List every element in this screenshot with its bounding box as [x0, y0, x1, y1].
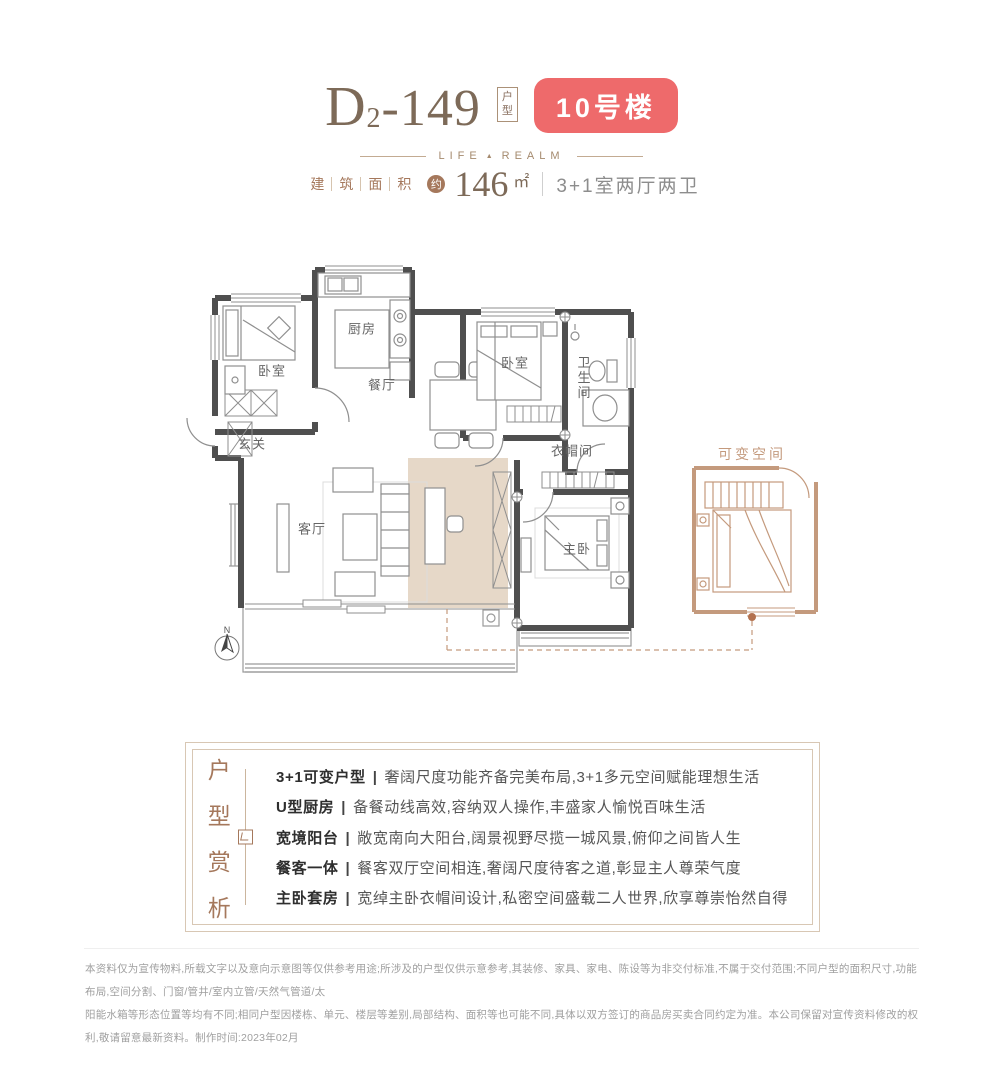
- vertical-title: 户 型 赏 析: [208, 751, 231, 923]
- vtitle-char-4: 析: [208, 889, 231, 923]
- seal-icon: [238, 830, 253, 845]
- vtitle-char-2: 型: [208, 797, 231, 831]
- layout-text: 3+1室两厅两卫: [556, 171, 699, 198]
- vtitle-char-1: 户: [208, 751, 231, 785]
- label-master: 主卧: [563, 539, 591, 558]
- brand-line-left: [360, 156, 426, 157]
- feature-row-5: 主卧套房|宽绰主卧衣帽间设计,私密空间盛载二人世界,欣享尊崇怡然自得: [276, 887, 788, 908]
- feature-title: 3+1可变户型: [276, 769, 366, 786]
- label-cloakroom: 衣帽间: [551, 441, 593, 460]
- brand-right: REALM: [502, 150, 565, 162]
- footer-divider: [84, 948, 919, 949]
- feature-desc: 宽绰主卧衣帽间设计,私密空间盛载二人世界,欣享尊崇怡然自得: [357, 890, 788, 907]
- label-entry: 玄关: [238, 434, 266, 453]
- feature-desc: 敞宽南向大阳台,阔景视野尽揽一城风景,俯仰之间皆人生: [357, 830, 741, 847]
- feature-separator: |: [345, 860, 350, 877]
- floorplan: 卧室 厨房 餐厅 卧室 卫生间 玄关 衣帽间 客厅 主卧 可变空间 N: [185, 220, 845, 690]
- area-char-3: 面: [361, 177, 390, 191]
- area-char-4: 积: [390, 177, 418, 191]
- tag-char-1: 户: [502, 91, 513, 104]
- unit-type-tag: 户 型: [497, 87, 518, 121]
- brand-separator-icon: ▲: [486, 153, 498, 160]
- label-bedroom-east: 卧室: [501, 353, 529, 372]
- area-char-1: 建: [303, 177, 332, 191]
- features-panel-inner: 户 型 赏 析 3+1可变户型|奢阔尺度功能齐备完美布局,3+1多元空间赋能理想…: [192, 749, 813, 925]
- approx-badge: 约: [427, 175, 445, 193]
- label-flexible-space: 可变空间: [718, 444, 786, 464]
- flyer-page: D 2 -149 户 型 10号楼 LIFE ▲ REALM 建 筑 面 积 约…: [0, 0, 1003, 1090]
- feature-desc: 奢阔尺度功能齐备完美布局,3+1多元空间赋能理想生活: [385, 769, 760, 786]
- feature-separator: |: [373, 769, 378, 786]
- area-unit: ㎡: [513, 168, 529, 192]
- label-dining: 餐厅: [368, 375, 396, 394]
- feature-row-3: 宽境阳台|敞宽南向大阳台,阔景视野尽揽一城风景,俯仰之间皆人生: [276, 827, 788, 848]
- unit-letter: D: [325, 79, 365, 135]
- title-divider: [245, 769, 246, 905]
- area-label: 建 筑 面 积: [303, 177, 418, 191]
- feature-title: 餐客一体: [276, 860, 338, 877]
- feature-desc: 餐客双厅空间相连,奢阔尺度待客之道,彰显主人尊荣气度: [357, 860, 741, 877]
- label-kitchen: 厨房: [348, 319, 376, 338]
- features-panel: 户 型 赏 析 3+1可变户型|奢阔尺度功能齐备完美布局,3+1多元空间赋能理想…: [185, 742, 820, 932]
- disclaimer-line-2: 阳能水箱等形态位置等均有不同;相同户型因楼栋、单元、楼层等差别,局部结构、面积等…: [85, 1004, 923, 1050]
- header: D 2 -149 户 型 10号楼: [0, 78, 1003, 135]
- tag-char-2: 型: [502, 105, 513, 118]
- area-row: 建 筑 面 积 约 146 ㎡ 3+1室两厅两卫: [0, 166, 1003, 202]
- disclaimer: 本资料仅为宣传物料,所载文字以及意向示意图等仅供参考用途;所涉及的户型仅供示意参…: [85, 958, 923, 1050]
- feature-rows: 3+1可变户型|奢阔尺度功能齐备完美布局,3+1多元空间赋能理想生活 U型厨房|…: [246, 750, 812, 924]
- disclaimer-line-1: 本资料仅为宣传物料,所载文字以及意向示意图等仅供参考用途;所涉及的户型仅供示意参…: [85, 958, 923, 1004]
- feature-title: 宽境阳台: [276, 830, 338, 847]
- label-bathroom: 卫生间: [574, 356, 593, 401]
- feature-separator: |: [341, 799, 346, 816]
- brand-row: LIFE ▲ REALM: [0, 150, 1003, 162]
- unit-letter-sub: 2: [367, 105, 381, 133]
- label-bedroom-north: 卧室: [258, 361, 286, 380]
- brand-line-right: [577, 156, 643, 157]
- feature-title: 主卧套房: [276, 890, 338, 907]
- feature-title: U型厨房: [276, 799, 334, 816]
- feature-separator: |: [345, 890, 350, 907]
- unit-number: -149: [382, 83, 481, 135]
- brand-left: LIFE: [438, 150, 481, 162]
- feature-row-2: U型厨房|备餐动线高效,容纳双人操作,丰盛家人愉悦百味生活: [276, 796, 788, 817]
- compass-north-label: N: [224, 625, 231, 635]
- feature-separator: |: [345, 830, 350, 847]
- feature-row-4: 餐客一体|餐客双厅空间相连,奢阔尺度待客之道,彰显主人尊荣气度: [276, 857, 788, 878]
- area-value: 146: [454, 166, 508, 202]
- brand-text: LIFE ▲ REALM: [438, 150, 564, 162]
- vtitle-char-3: 赏: [208, 843, 231, 877]
- area-divider: [542, 172, 543, 196]
- building-number-badge: 10号楼: [534, 78, 678, 133]
- feature-desc: 备餐动线高效,容纳双人操作,丰盛家人愉悦百味生活: [353, 799, 706, 816]
- compass-icon: [215, 634, 239, 660]
- area-char-2: 筑: [332, 177, 361, 191]
- label-living: 客厅: [298, 519, 326, 538]
- feature-row-1: 3+1可变户型|奢阔尺度功能齐备完美布局,3+1多元空间赋能理想生活: [276, 766, 788, 787]
- unit-type-title: D 2 -149: [325, 79, 481, 135]
